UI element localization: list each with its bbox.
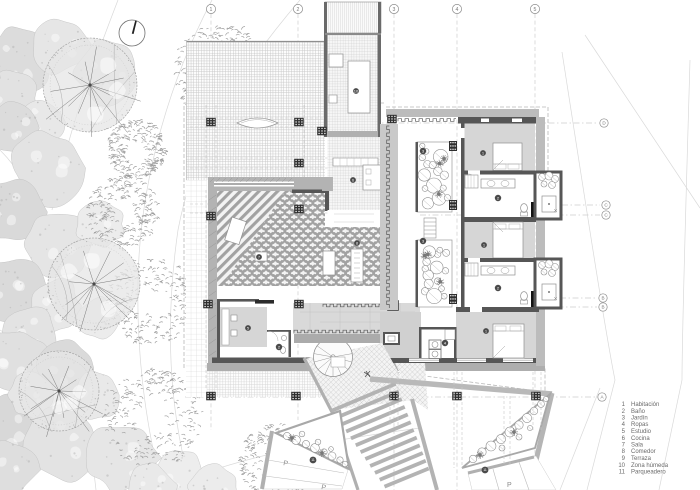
svg-text:Habitación: Habitación bbox=[631, 402, 659, 408]
svg-text:10: 10 bbox=[618, 463, 625, 469]
svg-text:B: B bbox=[601, 305, 604, 310]
svg-text:11: 11 bbox=[619, 470, 626, 476]
svg-text:Parqueadero: Parqueadero bbox=[631, 470, 666, 476]
svg-text:Terraza: Terraza bbox=[631, 456, 652, 462]
svg-text:Zona húmeda: Zona húmeda bbox=[631, 463, 669, 469]
svg-text:1: 1 bbox=[485, 329, 487, 333]
svg-text:7: 7 bbox=[258, 255, 260, 259]
svg-text:Baño: Baño bbox=[631, 409, 646, 415]
svg-text:Sala: Sala bbox=[631, 443, 644, 449]
svg-text:5: 5 bbox=[247, 326, 249, 330]
svg-text:Ropas: Ropas bbox=[631, 422, 648, 428]
svg-text:3: 3 bbox=[393, 7, 396, 13]
svg-text:P: P bbox=[507, 482, 512, 489]
svg-text:1: 1 bbox=[210, 7, 213, 13]
svg-text:11: 11 bbox=[311, 458, 315, 462]
svg-text:5: 5 bbox=[534, 7, 537, 13]
svg-text:Estudio: Estudio bbox=[631, 429, 652, 435]
svg-text:4: 4 bbox=[456, 7, 459, 13]
svg-text:Jardín: Jardín bbox=[631, 416, 648, 422]
svg-text:2: 2 bbox=[297, 7, 300, 13]
svg-text:8: 8 bbox=[356, 241, 358, 245]
svg-text:11: 11 bbox=[483, 468, 487, 472]
svg-text:Cocina: Cocina bbox=[631, 436, 650, 442]
svg-text:1: 1 bbox=[483, 243, 485, 247]
svg-text:1: 1 bbox=[482, 151, 484, 155]
svg-text:6: 6 bbox=[352, 178, 354, 182]
svg-text:Comedor: Comedor bbox=[631, 449, 656, 455]
svg-text:B: B bbox=[601, 296, 604, 301]
svg-text:10: 10 bbox=[354, 88, 359, 93]
